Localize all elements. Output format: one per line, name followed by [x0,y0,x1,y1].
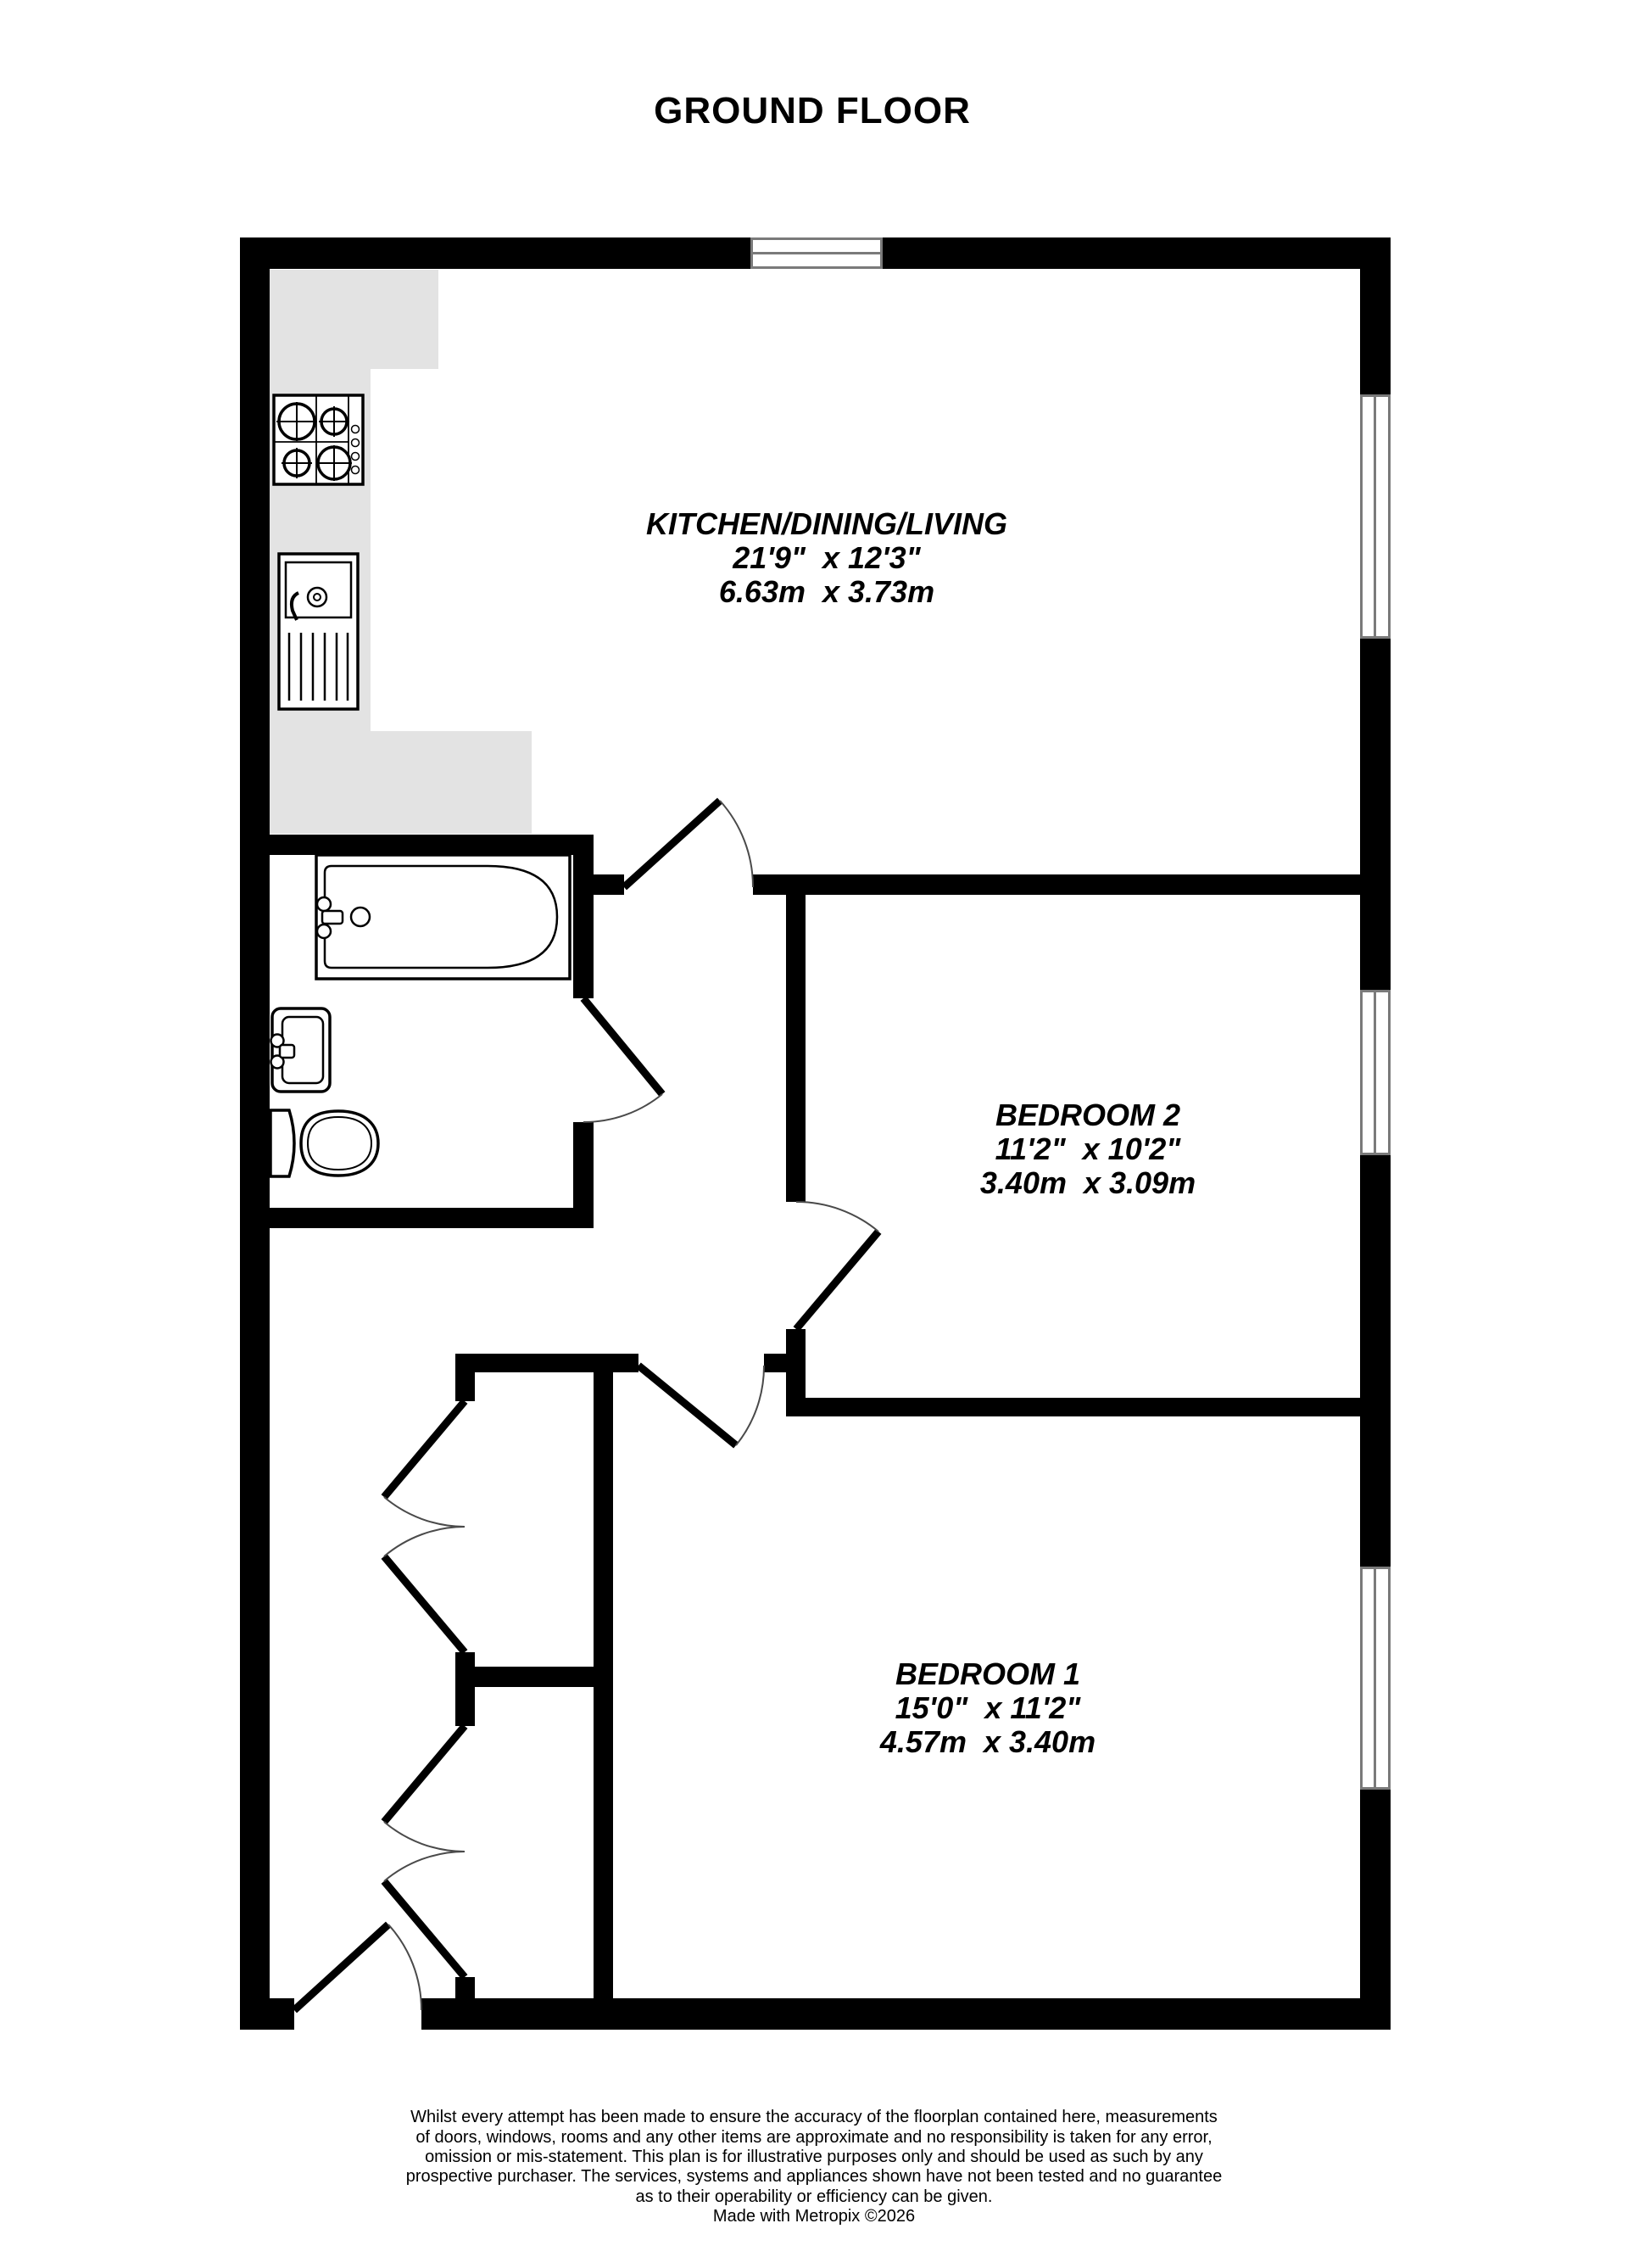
hob-knob-2 [352,439,360,447]
bedroom-divider-wall [806,1398,1360,1416]
page-title: GROUND FLOOR [654,90,971,131]
hall-cupboard-doors-1 [384,1401,465,1652]
bedroom-1-label: BEDROOM 1 [895,1656,1080,1691]
bedroom2-door-stub [786,1329,806,1416]
cupboard-1-upper-swing [384,1497,465,1527]
footer-disclaimer: Whilst every attempt has been made to en… [406,2108,1222,2226]
toilet-cistern [270,1110,294,1176]
bedroom-2-window [1359,990,1391,1155]
bathroom-right-wall-upper [573,835,594,998]
disclaimer-line-3: omission or mis-statement. This plan is … [425,2148,1203,2166]
cupboard-stub-top [455,1372,475,1401]
cupboard-stub-middle [455,1652,475,1726]
cupboard-divider-wall [465,1667,613,1687]
toilet-bowl-inner [308,1117,371,1170]
entrance-opening [294,1998,421,2030]
bathtub-tap-cold [317,925,331,938]
cupboard-2-upper-leaf [384,1726,465,1822]
cupboard-stub-bottom [455,1977,475,1999]
bathroom-door [583,998,662,1122]
counter-bottom-section [270,731,532,834]
interior-walls [270,835,1360,1999]
bedroom-2-door [796,1202,878,1329]
kitchen-door-swing [720,801,753,887]
bedroom-1-door [638,1366,764,1445]
room-labels: KITCHEN/DINING/LIVING 21'9" x 12'3" 6.63… [646,506,1196,1759]
kitchen-dims-metric: 6.63m x 3.73m [719,574,934,609]
bathroom-door-swing [583,1094,662,1122]
bedroom2-left-wall [786,895,806,1202]
bathroom-door-leaf [583,998,662,1094]
hob-knob-4 [352,466,360,474]
hob-icon [274,395,363,484]
kitchen-bottom-wall [753,874,1360,895]
bedroom-1-door-swing [736,1366,764,1445]
bedroom-2-dims-imperial: 11'2" x 10'2" [995,1131,1182,1166]
bedroom-1-dims-metric: 4.57m x 3.40m [879,1724,1096,1759]
kitchen-bottom-wall-stub [594,874,624,895]
hall-wall-nub [764,1354,786,1372]
disclaimer-line-2: of doors, windows, rooms and any other i… [415,2128,1212,2147]
made-with-metropix: Made with Metropix ©2026 [713,2207,915,2226]
cupboard-1-lower-leaf [384,1556,465,1652]
top-window [750,237,883,270]
kitchen-label: KITCHEN/DINING/LIVING [646,506,1007,541]
bathtub-plughole [351,908,370,926]
cupboard-2-upper-swing [384,1822,465,1852]
cupboard-1-lower-swing [384,1527,465,1556]
hob-knob-3 [352,453,360,461]
kitchen-door-leaf [624,801,720,887]
floorplan-page: GROUND FLOOR [0,0,1628,2268]
floorplan-canvas: GROUND FLOOR [0,0,1628,2268]
cupboard-2-lower-leaf [384,1881,465,1977]
bedroom-2-label: BEDROOM 2 [995,1098,1180,1132]
disclaimer-line-4: prospective purchaser. The services, sys… [406,2167,1222,2186]
wall-left [240,237,270,2030]
entrance-door-leaf [294,1924,388,2010]
bathtub-tap-hot [317,897,331,911]
basin-icon [271,1008,331,1092]
kitchen-sink-icon [279,554,358,709]
disclaimer-line-5: as to their operability or efficiency ca… [636,2187,993,2206]
kitchen-window [1359,394,1391,639]
bedroom-2-dims-metric: 3.40m x 3.09m [980,1165,1196,1200]
kitchen-dims-imperial: 21'9" x 12'3" [732,540,921,575]
basin-spout [280,1045,294,1058]
cupboard-1-upper-leaf [384,1401,465,1497]
sink-plughole-center [314,594,321,601]
cupboard-2-lower-swing [384,1852,465,1881]
kitchen-door [624,801,753,887]
bathtub-spout [322,911,343,924]
disclaimer-line-1: Whilst every attempt has been made to en… [410,2108,1218,2126]
bedroom-1-dims-imperial: 15'0" x 11'2" [895,1690,1082,1725]
kitchen-counter [270,270,532,834]
bedroom-2-door-swing [796,1202,878,1232]
bedroom-1-door-leaf [638,1366,736,1445]
hob-knob-1 [352,426,360,433]
bedroom-1-window [1359,1567,1391,1790]
bedroom-2-door-leaf [796,1232,878,1329]
bathroom-bottom-wall [270,1208,594,1228]
hall-cupboard-doors-2 [384,1726,465,1977]
entrance-door-swing [388,1924,421,2010]
bathtub-icon [316,855,570,979]
entrance-door [294,1924,421,2010]
windows [750,237,1391,1790]
toilet-icon [270,1110,378,1176]
bathroom-top-wall [270,835,594,855]
